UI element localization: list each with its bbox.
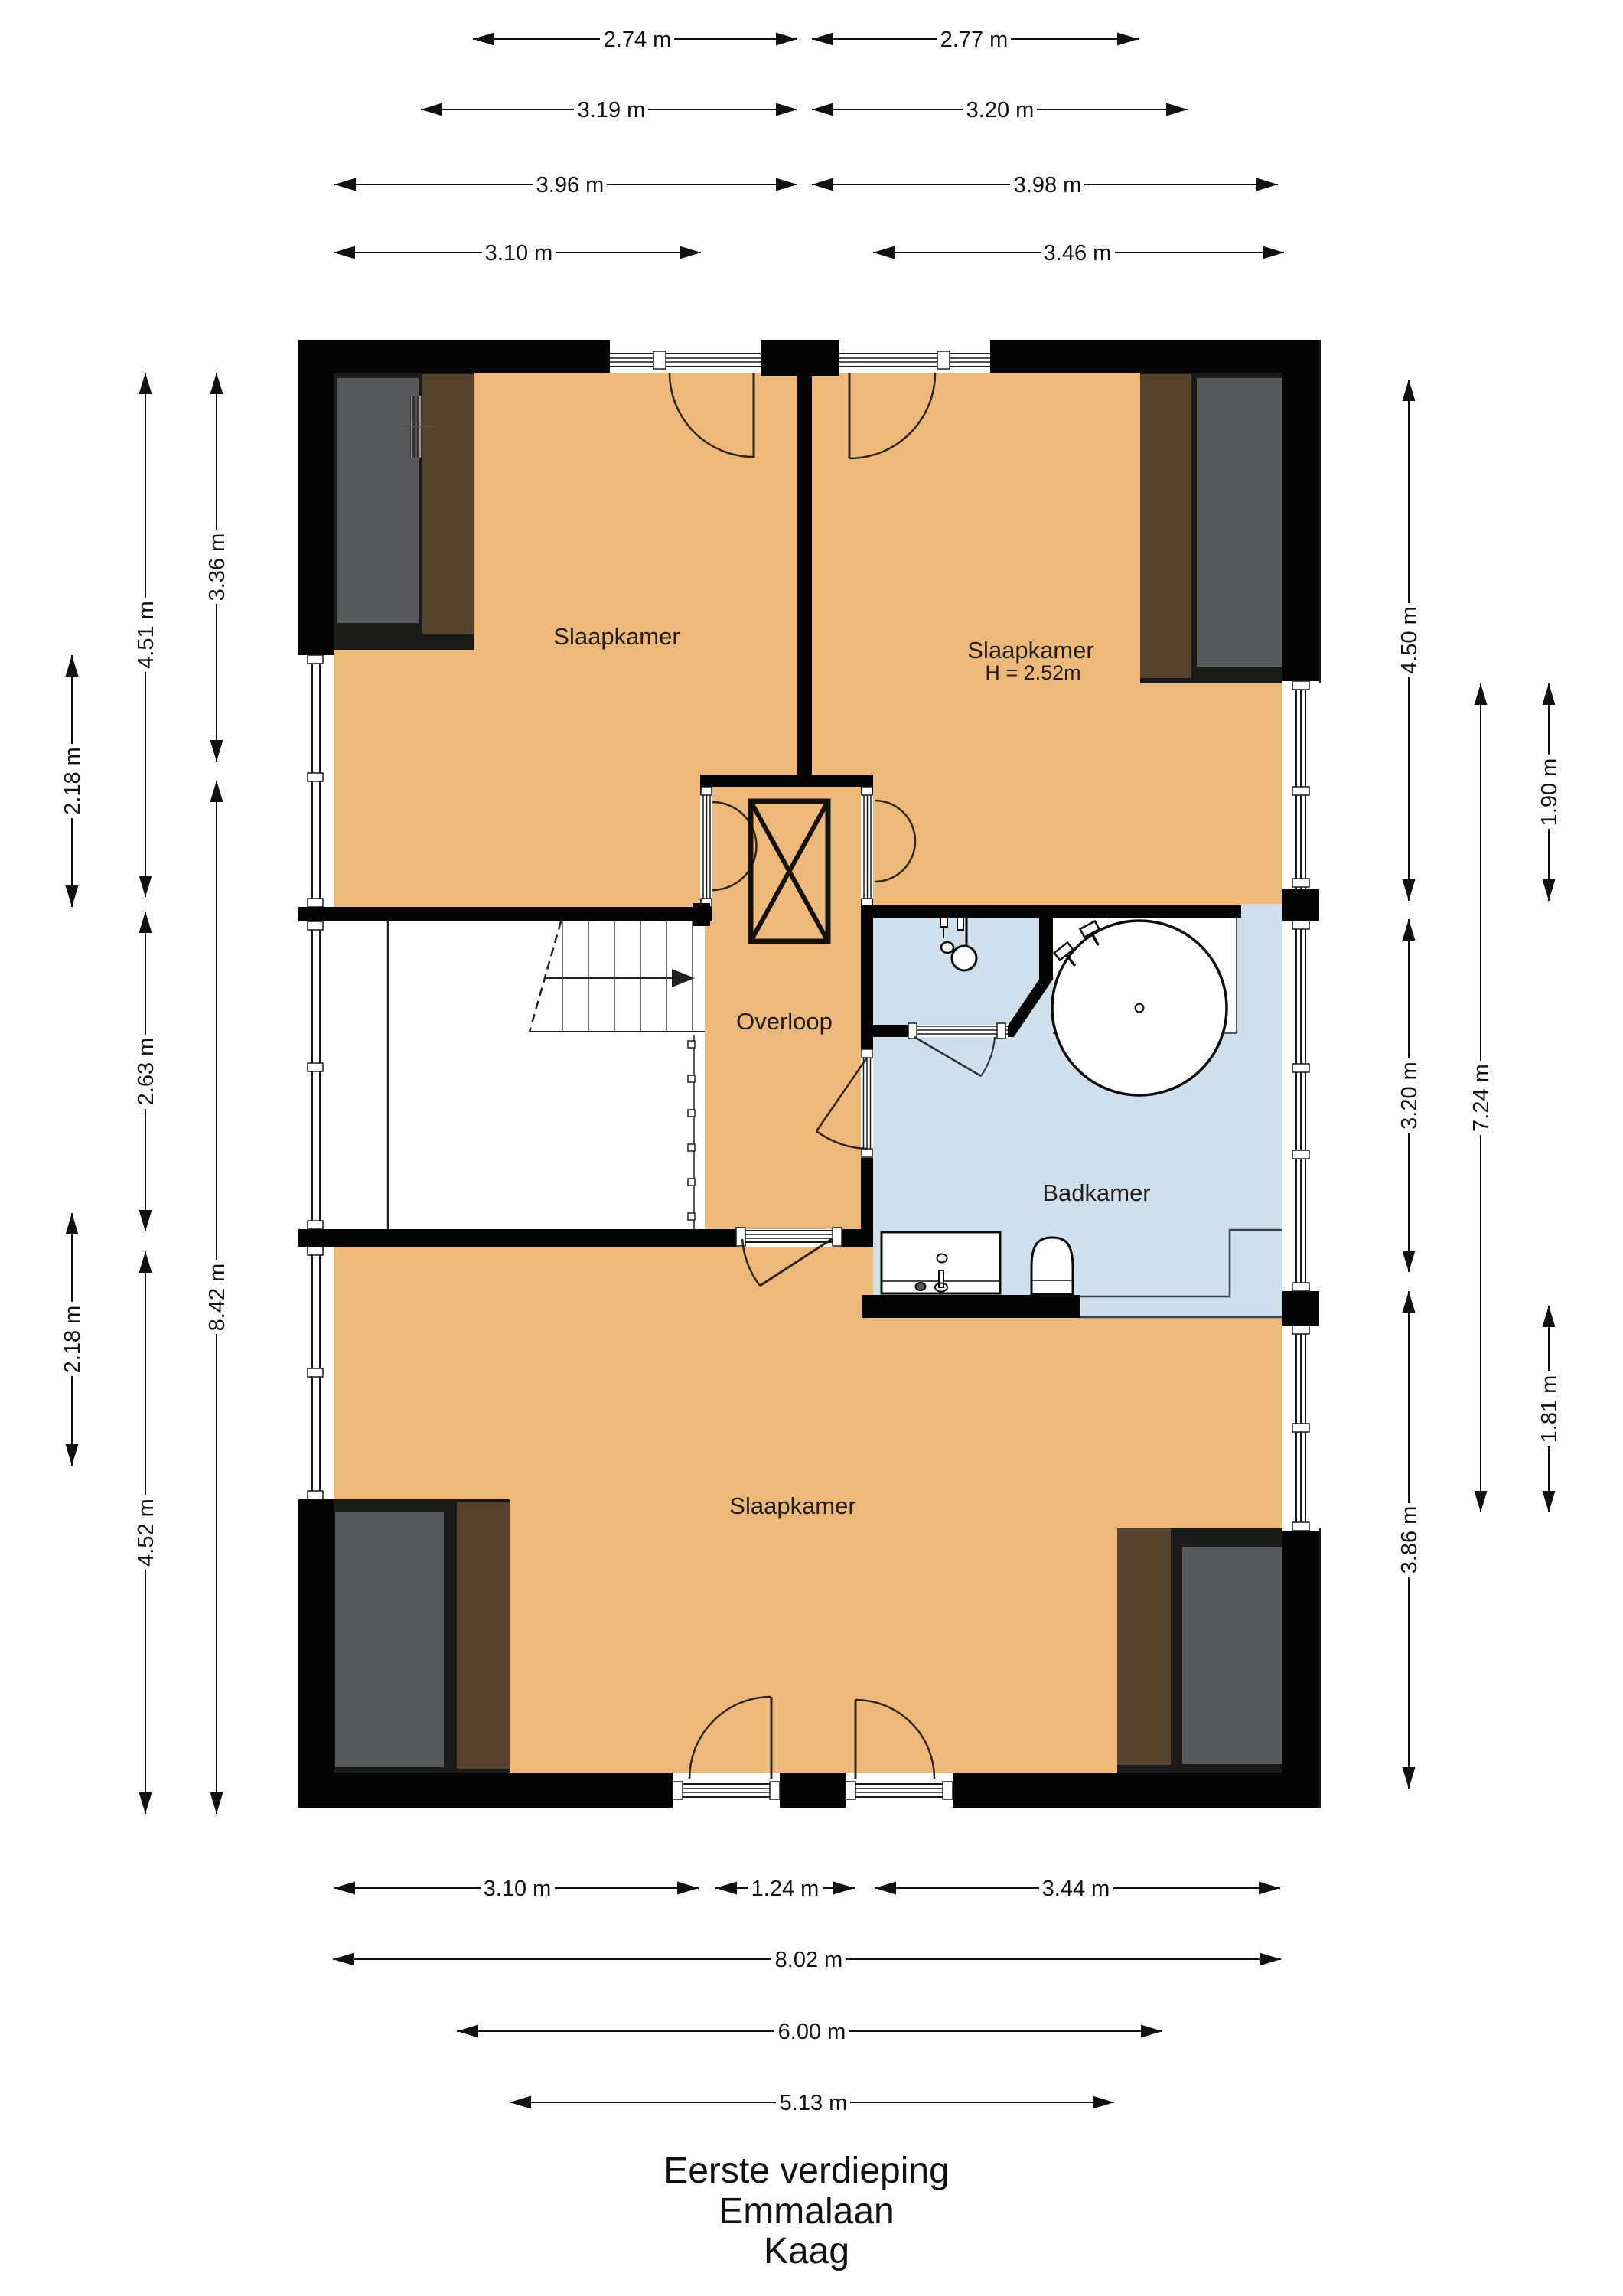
svg-text:3.46 m: 3.46 m bbox=[1044, 241, 1112, 266]
svg-text:2.63 m: 2.63 m bbox=[134, 1038, 158, 1106]
svg-text:4.52 m: 4.52 m bbox=[134, 1499, 158, 1567]
svg-text:3.98 m: 3.98 m bbox=[1014, 173, 1082, 197]
svg-text:3.44 m: 3.44 m bbox=[1042, 1877, 1110, 1901]
svg-text:Eerste verdieping: Eerste verdieping bbox=[663, 2151, 950, 2191]
svg-text:4.51 m: 4.51 m bbox=[134, 601, 158, 669]
svg-text:Badkamer: Badkamer bbox=[1042, 1179, 1150, 1206]
svg-text:Slaapkamer: Slaapkamer bbox=[553, 623, 680, 650]
svg-text:3.86 m: 3.86 m bbox=[1397, 1506, 1422, 1574]
svg-text:2.74 m: 2.74 m bbox=[604, 28, 672, 52]
svg-text:3.19 m: 3.19 m bbox=[578, 98, 646, 122]
svg-text:3.36 m: 3.36 m bbox=[205, 533, 230, 602]
svg-text:3.10 m: 3.10 m bbox=[485, 241, 553, 266]
svg-text:3.20 m: 3.20 m bbox=[966, 98, 1035, 122]
svg-text:8.02 m: 8.02 m bbox=[775, 1948, 843, 1972]
svg-text:7.24 m: 7.24 m bbox=[1469, 1064, 1494, 1132]
svg-text:3.96 m: 3.96 m bbox=[536, 173, 605, 197]
svg-text:3.20 m: 3.20 m bbox=[1397, 1062, 1422, 1130]
svg-text:2.18 m: 2.18 m bbox=[60, 747, 85, 815]
svg-text:H = 2.52m: H = 2.52m bbox=[985, 661, 1080, 684]
svg-text:Emmalaan: Emmalaan bbox=[719, 2191, 894, 2232]
svg-text:Slaapkamer: Slaapkamer bbox=[967, 637, 1093, 664]
svg-text:2.18 m: 2.18 m bbox=[60, 1306, 85, 1374]
svg-text:5.13 m: 5.13 m bbox=[780, 2091, 848, 2115]
svg-text:Slaapkamer: Slaapkamer bbox=[729, 1492, 855, 1519]
svg-text:1.90 m: 1.90 m bbox=[1537, 758, 1562, 827]
svg-text:8.42 m: 8.42 m bbox=[205, 1264, 230, 1332]
svg-text:1.81 m: 1.81 m bbox=[1537, 1375, 1562, 1443]
svg-text:Kaag: Kaag bbox=[764, 2231, 849, 2272]
svg-text:2.77 m: 2.77 m bbox=[940, 28, 1009, 52]
svg-text:1.24 m: 1.24 m bbox=[751, 1877, 820, 1901]
svg-text:4.50 m: 4.50 m bbox=[1397, 606, 1422, 674]
svg-text:3.10 m: 3.10 m bbox=[484, 1877, 552, 1901]
svg-text:Overloop: Overloop bbox=[736, 1008, 833, 1035]
svg-text:6.00 m: 6.00 m bbox=[778, 2020, 846, 2044]
